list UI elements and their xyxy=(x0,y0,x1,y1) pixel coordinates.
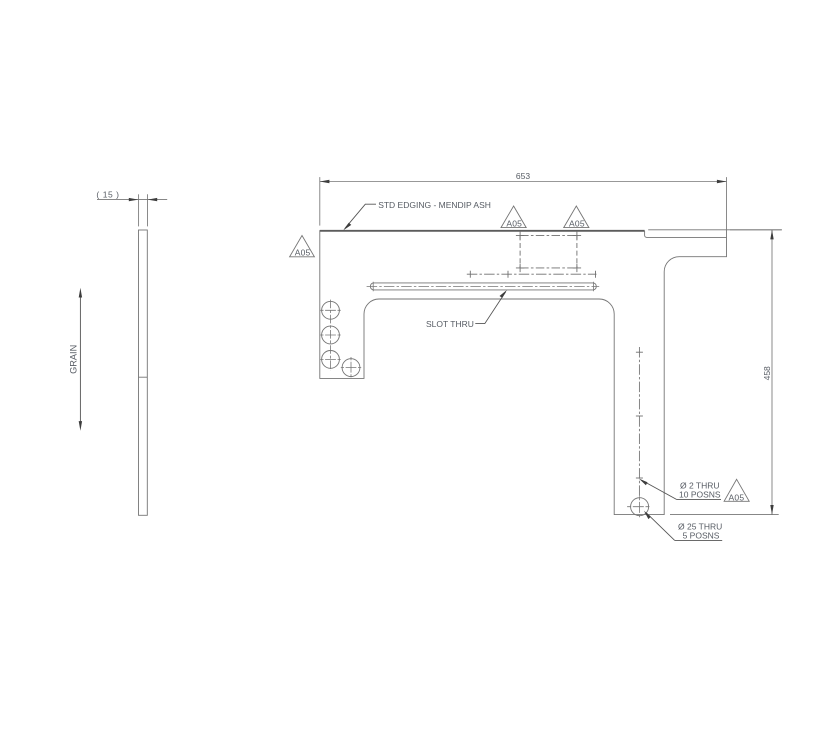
svg-text:A05: A05 xyxy=(295,248,311,258)
svg-text:653: 653 xyxy=(516,171,530,181)
svg-text:( 15 ): ( 15 ) xyxy=(96,189,119,199)
svg-text:A05: A05 xyxy=(569,219,585,229)
svg-text:5 POSNS: 5 POSNS xyxy=(683,531,720,541)
svg-text:A05: A05 xyxy=(729,493,745,503)
svg-text:STD EDGING - MENDIP ASH: STD EDGING - MENDIP ASH xyxy=(378,200,491,210)
svg-text:A05: A05 xyxy=(506,219,522,229)
svg-text:GRAIN: GRAIN xyxy=(69,345,79,374)
svg-text:10 POSNS: 10 POSNS xyxy=(679,490,721,500)
svg-text:458: 458 xyxy=(762,366,772,380)
svg-text:SLOT THRU: SLOT THRU xyxy=(426,319,474,329)
